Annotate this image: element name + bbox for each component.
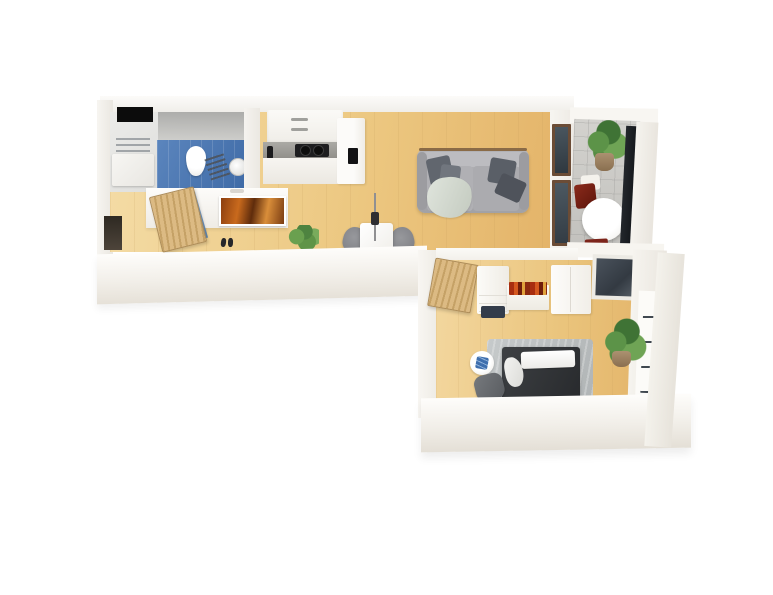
floor-lamp-head (371, 212, 379, 225)
cooktop-pot-right (313, 145, 324, 156)
bathroom-kitchen-wall (244, 108, 260, 194)
kitchen-lower-cabinets (263, 158, 343, 184)
washer-black-panel (117, 107, 153, 122)
sofa-wood-rail (419, 148, 527, 151)
cabinet-handle-bottom (291, 128, 308, 131)
entrance-dark-gap (104, 216, 122, 250)
books-row (509, 282, 547, 295)
wardrobe (551, 265, 591, 314)
dining-plant (287, 225, 319, 251)
cabinet-handle-top (291, 118, 308, 121)
bathroom-faucet-fixtures (116, 134, 150, 152)
cooktop-pot-left (300, 145, 311, 156)
balcony-door-upper-glass (555, 127, 568, 173)
shoe-right (228, 238, 233, 247)
fridge-display-panel (348, 148, 358, 164)
bed-pillows (521, 350, 576, 369)
bedroom-door (427, 258, 479, 314)
wardrobe-seam (570, 267, 571, 312)
balcony-door-lower-glass (555, 183, 568, 243)
hall-vent (230, 189, 244, 193)
apartment-3d-floor-plan (0, 0, 773, 595)
hall-artwork (219, 196, 286, 226)
floor-plan (0, 0, 773, 595)
balcony-plant-pot (595, 153, 614, 171)
front-wall-main (97, 246, 427, 305)
dresser-dark-items (481, 306, 505, 318)
bedroom-plant-pot (612, 351, 631, 367)
bedside-books (475, 356, 489, 370)
balcony-round-table (582, 198, 625, 241)
kitchen-upper-cabinets (267, 110, 343, 144)
bathroom-vanity (112, 154, 154, 186)
